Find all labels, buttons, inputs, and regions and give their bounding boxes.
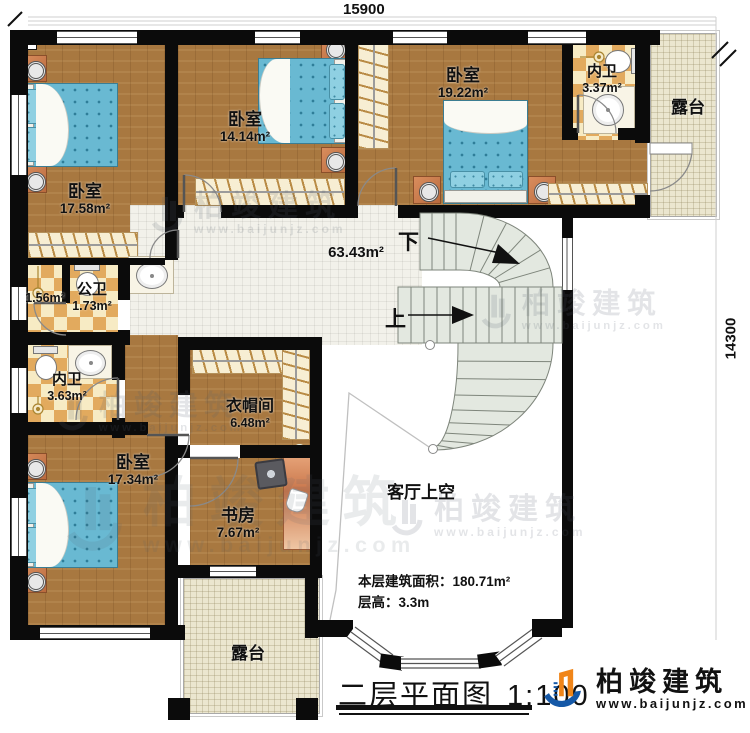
- dimension-right: 14300: [722, 318, 739, 360]
- hall-area-label: 63.43m²: [328, 245, 384, 262]
- floor-height-note: 层高：3.3m: [358, 593, 510, 614]
- floor-area-note: 本层建筑面积：180.71m²: [358, 572, 510, 593]
- room-label-bath-tr: 内卫 3.37m²: [582, 64, 622, 95]
- room-label-terrace-bottom: 露台: [231, 644, 265, 663]
- floor-plan: 柏竣建筑 www.baijunjz.com 柏竣建筑 www.baijunjz.…: [0, 0, 750, 733]
- room-label-bath-left: 内卫 3.63m²: [47, 372, 87, 403]
- title-underline: [336, 705, 532, 710]
- floor-notes: 本层建筑面积：180.71m² 层高：3.3m: [358, 572, 510, 614]
- room-label-terrace-right: 露台: [671, 98, 705, 117]
- room-label-bath-ante: 1.56m²: [25, 291, 65, 305]
- brand-name: 柏竣建筑: [596, 669, 748, 696]
- room-label-bedroom-tl: 卧室 17.58m²: [60, 182, 110, 216]
- room-label-bath-public: 公卫 1.73m²: [72, 282, 112, 313]
- room-label-bedroom-tr: 卧室 19.22m²: [438, 66, 488, 100]
- room-label-bedroom-bl: 卧室 17.34m²: [108, 453, 158, 487]
- terrace-door-leaf: [650, 143, 692, 154]
- room-label-bedroom-tm: 卧室 14.14m²: [220, 110, 270, 144]
- brand-logo-icon: [538, 664, 588, 716]
- title-underline-thin: [339, 713, 529, 715]
- room-label-void: 客厅上空: [387, 483, 455, 502]
- room-label-cloakroom: 衣帽间 6.48m²: [226, 398, 274, 430]
- stair-down-label: 下: [398, 226, 419, 256]
- brand-site: www.baijunjz.com: [596, 696, 748, 711]
- room-label-study: 书房 7.67m²: [217, 506, 260, 540]
- brand-logo: 柏竣建筑 www.baijunjz.com: [538, 664, 748, 716]
- bay-window: [310, 619, 562, 671]
- plan-linework: [0, 0, 750, 733]
- stair-up-label: 上: [385, 303, 406, 333]
- dimension-top: 15900: [343, 1, 385, 18]
